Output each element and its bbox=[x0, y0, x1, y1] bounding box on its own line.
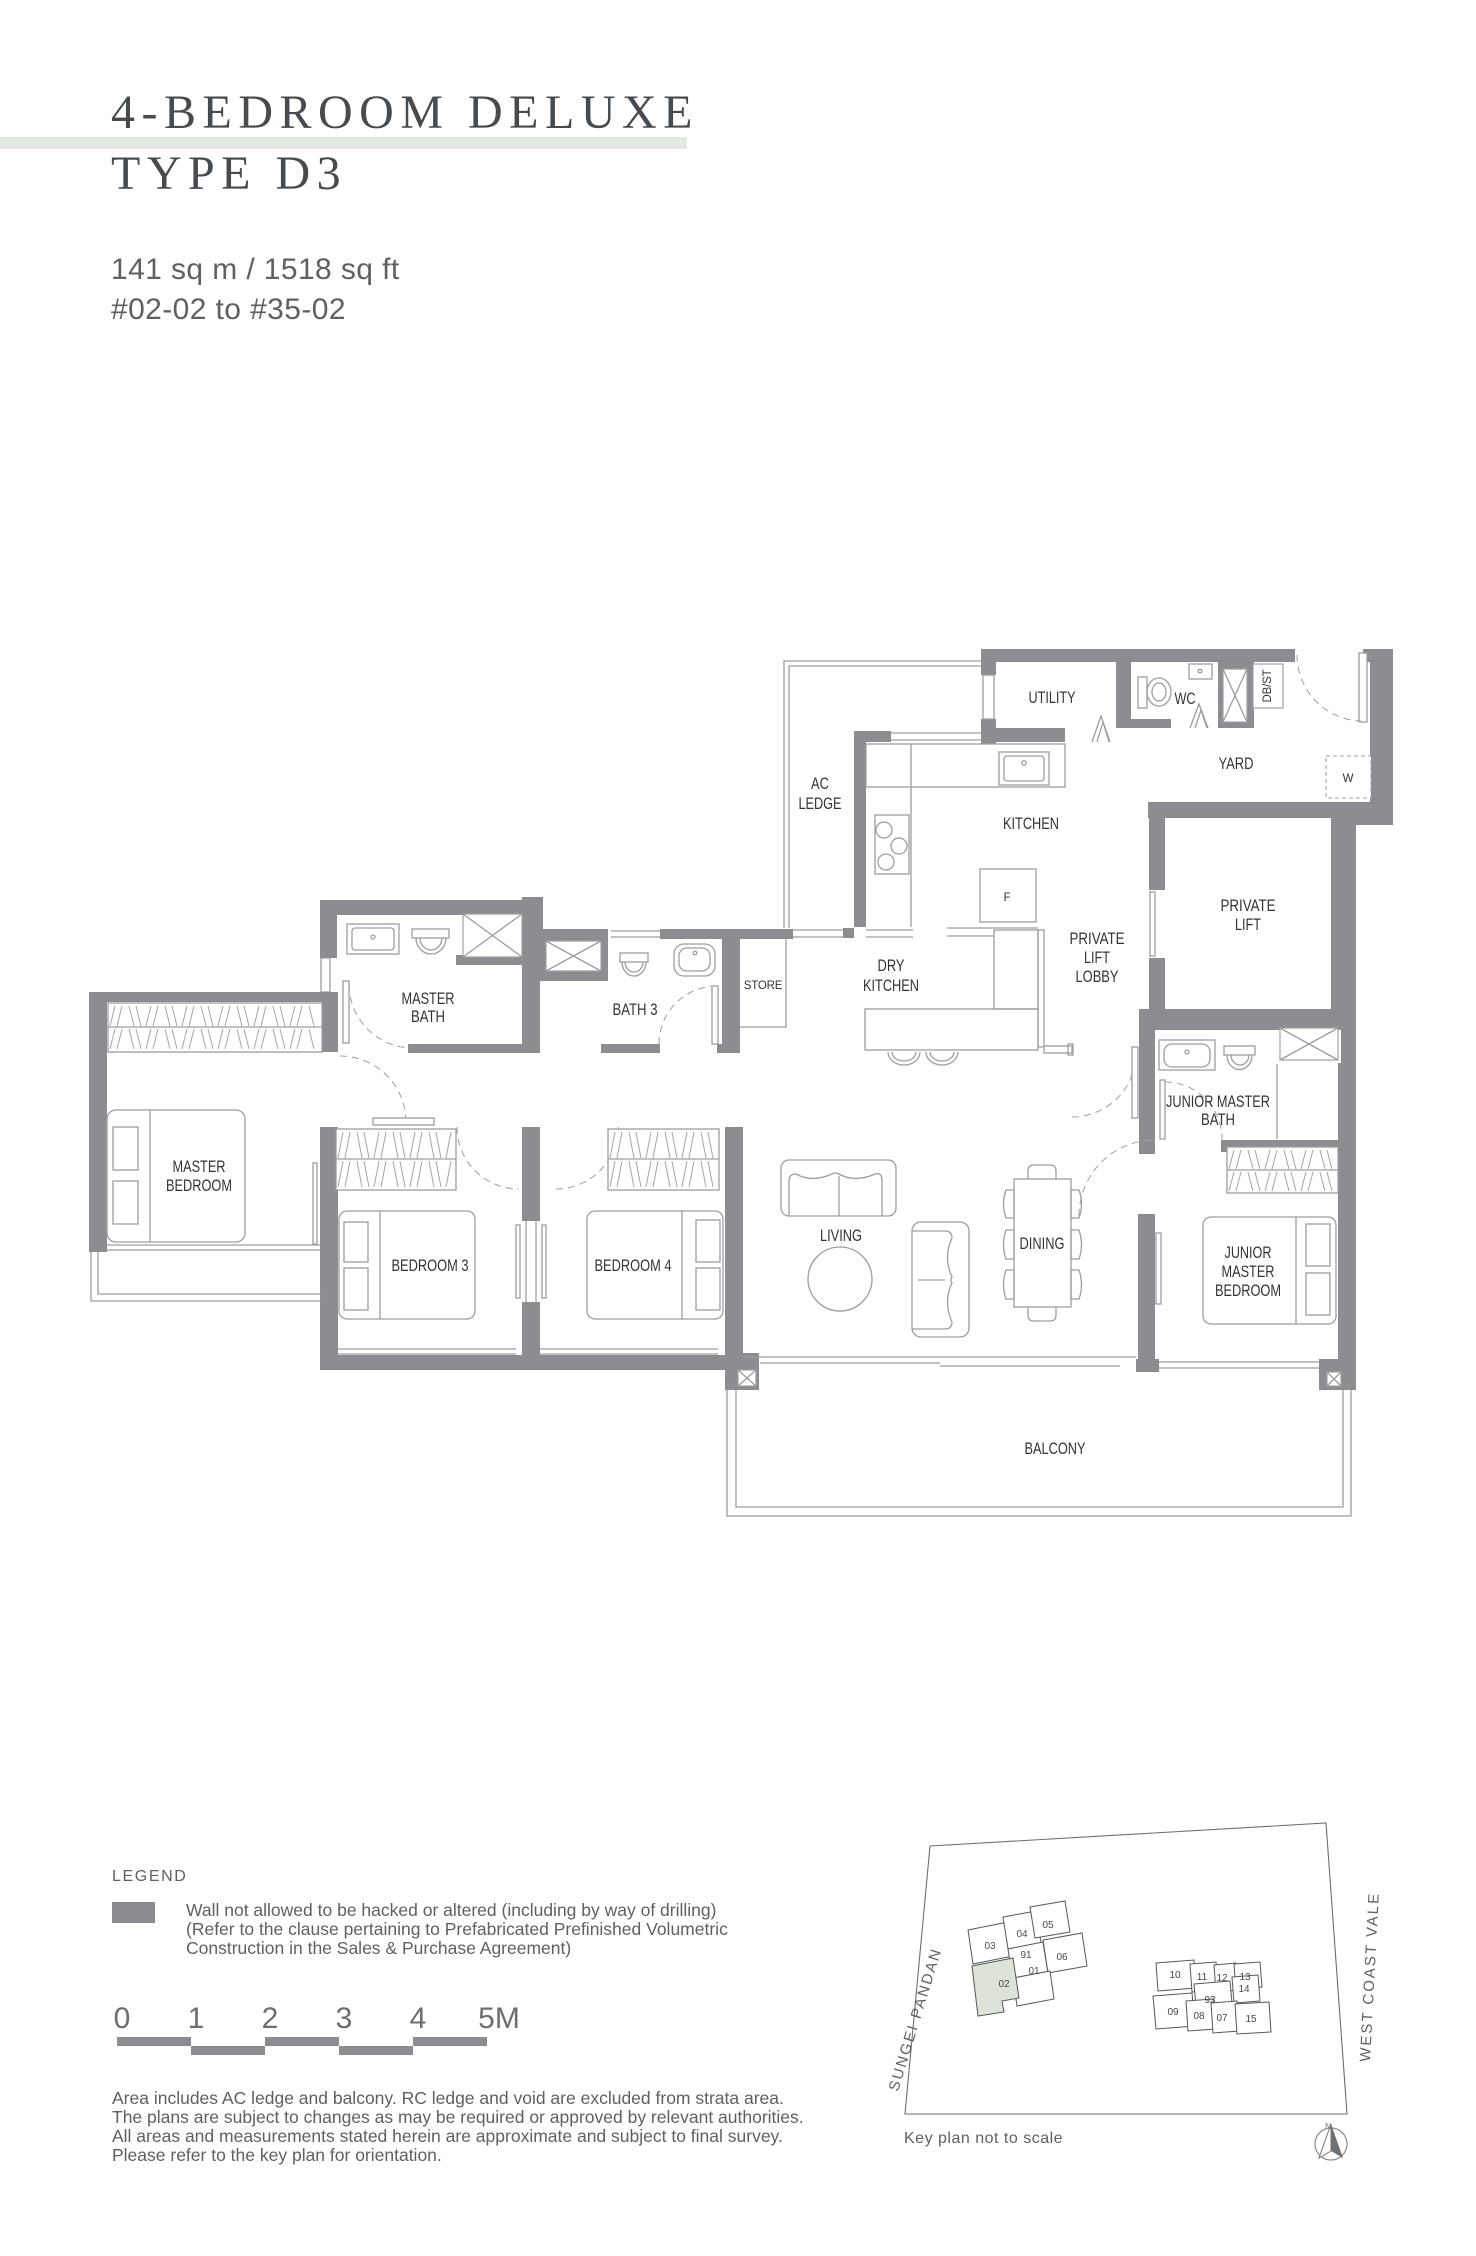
svg-text:DRY: DRY bbox=[878, 956, 905, 975]
svg-text:91: 91 bbox=[1020, 1950, 1032, 1961]
svg-text:STORE: STORE bbox=[744, 980, 783, 992]
svg-text:WC: WC bbox=[1175, 689, 1196, 708]
svg-text:AC: AC bbox=[811, 774, 829, 793]
svg-text:TYPE D3: TYPE D3 bbox=[111, 147, 347, 200]
svg-text:12: 12 bbox=[1216, 1973, 1228, 1984]
svg-text:Key plan not to scale: Key plan not to scale bbox=[904, 2130, 1063, 2147]
svg-text:F: F bbox=[1004, 892, 1011, 904]
svg-text:141 sq m / 1518 sq ft: 141 sq m / 1518 sq ft bbox=[111, 253, 400, 286]
svg-text:KITCHEN: KITCHEN bbox=[863, 976, 919, 995]
svg-text:BATH 3: BATH 3 bbox=[613, 1000, 658, 1019]
svg-text:(Refer to the clause pertainin: (Refer to the clause pertaining to Prefa… bbox=[186, 1919, 728, 1939]
svg-text:08: 08 bbox=[1193, 2011, 1205, 2022]
svg-text:15: 15 bbox=[1245, 2014, 1257, 2025]
svg-text:LIFT: LIFT bbox=[1084, 948, 1110, 967]
svg-text:LIVING: LIVING bbox=[820, 1226, 862, 1245]
svg-text:PRIVATE: PRIVATE bbox=[1221, 896, 1276, 915]
svg-text:BEDROOM: BEDROOM bbox=[166, 1176, 232, 1195]
svg-text:Construction in the Sales & Pu: Construction in the Sales & Purchase Agr… bbox=[186, 1938, 571, 1958]
svg-text:BEDROOM: BEDROOM bbox=[1215, 1281, 1281, 1300]
svg-text:W: W bbox=[1343, 773, 1354, 785]
svg-text:N: N bbox=[1325, 2121, 1331, 2131]
svg-text:UTILITY: UTILITY bbox=[1029, 688, 1076, 707]
svg-text:06: 06 bbox=[1056, 1952, 1068, 1963]
svg-text:BEDROOM 3: BEDROOM 3 bbox=[392, 1256, 469, 1275]
svg-text:09: 09 bbox=[1167, 2007, 1179, 2018]
svg-text:4-BEDROOM DELUXE: 4-BEDROOM DELUXE bbox=[111, 86, 699, 139]
svg-text:4: 4 bbox=[410, 2002, 427, 2035]
svg-text:13: 13 bbox=[1239, 1972, 1251, 1983]
svg-text:05: 05 bbox=[1042, 1920, 1054, 1931]
svg-text:07: 07 bbox=[1216, 2013, 1228, 2024]
svg-text:0: 0 bbox=[114, 2002, 131, 2035]
svg-text:1: 1 bbox=[188, 2002, 205, 2035]
svg-text:14: 14 bbox=[1238, 1984, 1250, 1995]
svg-text:BEDROOM 4: BEDROOM 4 bbox=[595, 1256, 672, 1275]
svg-text:MASTER: MASTER bbox=[1222, 1262, 1275, 1281]
svg-text:YARD: YARD bbox=[1219, 754, 1254, 773]
svg-text:BALCONY: BALCONY bbox=[1025, 1439, 1086, 1458]
svg-text:11: 11 bbox=[1197, 1972, 1208, 1983]
svg-text:Area includes AC ledge and bal: Area includes AC ledge and balcony. RC l… bbox=[112, 2088, 784, 2108]
svg-text:03: 03 bbox=[984, 1941, 996, 1952]
svg-text:02: 02 bbox=[998, 1979, 1010, 1990]
svg-text:DINING: DINING bbox=[1020, 1234, 1065, 1253]
svg-text:BATH: BATH bbox=[1201, 1110, 1235, 1129]
svg-text:KITCHEN: KITCHEN bbox=[1003, 814, 1059, 833]
svg-text:MASTER: MASTER bbox=[402, 989, 455, 1008]
svg-text:JUNIOR: JUNIOR bbox=[1225, 1243, 1272, 1262]
svg-text:BATH: BATH bbox=[411, 1007, 445, 1026]
svg-text:10: 10 bbox=[1169, 1970, 1181, 1981]
svg-text:MASTER: MASTER bbox=[173, 1157, 226, 1176]
svg-text:PRIVATE: PRIVATE bbox=[1070, 929, 1125, 948]
svg-text:04: 04 bbox=[1016, 1929, 1028, 1940]
svg-text:93: 93 bbox=[1204, 1995, 1216, 2006]
svg-text:Wall not allowed to be hacked: Wall not allowed to be hacked or altered… bbox=[186, 1900, 716, 1920]
svg-text:DB/ST: DB/ST bbox=[1262, 669, 1274, 702]
svg-text:Please refer to the key plan f: Please refer to the key plan for orienta… bbox=[112, 2145, 442, 2165]
svg-text:All areas and measurements sta: All areas and measurements stated herein… bbox=[112, 2126, 783, 2146]
svg-text:LEGEND: LEGEND bbox=[112, 1868, 187, 1885]
svg-text:LEDGE: LEDGE bbox=[799, 794, 842, 813]
svg-text:3: 3 bbox=[336, 2002, 353, 2035]
svg-text:01: 01 bbox=[1028, 1966, 1040, 1977]
svg-text:LOBBY: LOBBY bbox=[1076, 967, 1119, 986]
svg-text:The plans are subject to chang: The plans are subject to changes as may … bbox=[112, 2107, 804, 2127]
svg-text:2: 2 bbox=[262, 2002, 279, 2035]
svg-text:5M: 5M bbox=[478, 2002, 520, 2035]
svg-text:#02-02 to #35-02: #02-02 to #35-02 bbox=[111, 293, 346, 326]
svg-text:JUNIOR MASTER: JUNIOR MASTER bbox=[1166, 1092, 1270, 1111]
svg-text:LIFT: LIFT bbox=[1235, 915, 1261, 934]
